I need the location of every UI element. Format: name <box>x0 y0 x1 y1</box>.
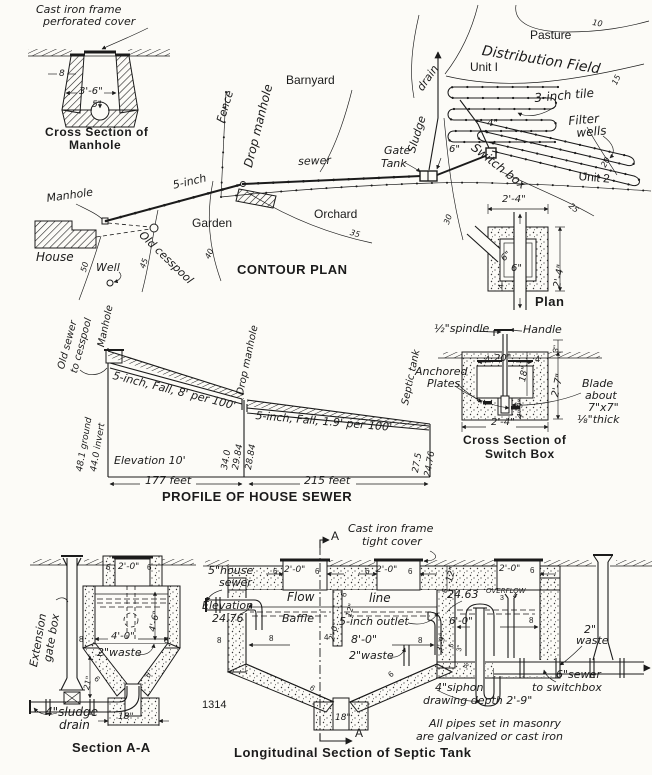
long-dim-2-0c: 2'-0" <box>499 565 520 574</box>
sbplan-dim-pipe: 6" <box>511 264 522 274</box>
plan-contour-10: 10 <box>592 19 603 28</box>
long-label-line: line <box>369 593 391 604</box>
long-label-to-switchbox: to switchbox <box>532 683 602 693</box>
plan-label-sewer: sewer <box>298 156 331 168</box>
manhole-dim-channel: 5" <box>92 101 102 110</box>
profile-dim-177: 177 feet <box>145 476 191 486</box>
long-label-2waste: 2"waste <box>349 651 394 661</box>
long-label-house-sewer-2: sewer <box>219 578 252 588</box>
long-dim-8c: 8 <box>529 617 533 625</box>
secaa-dim-18: 18" <box>118 713 134 722</box>
secaa-caption: Section A-A <box>72 742 151 754</box>
secaa-dim-8r: 8 <box>164 637 168 645</box>
secaa-dim-4-0: 4'-0" <box>111 632 135 642</box>
swbox-label-plates: Plates <box>427 379 460 389</box>
long-dim-18: 18" <box>335 714 351 723</box>
long-label-baffle: Baffle <box>282 614 314 624</box>
long-label-cover-2: tight cover <box>362 537 422 547</box>
sbplan-caption: Plan <box>535 296 564 308</box>
swbox-dim-3: 3" <box>552 345 561 354</box>
contour-plan-drawing <box>35 5 651 300</box>
long-dim-6b: 6 <box>315 568 319 576</box>
swbox-dim-4-right: 4 <box>535 355 540 364</box>
plan-dim-6: 6" <box>449 145 460 155</box>
long-label-flow: Flow <box>287 592 314 603</box>
long-label-overflow: OVERFLOW <box>486 588 526 595</box>
plan-label-wells: wells <box>576 125 607 139</box>
manhole-caption-2: Manhole <box>69 140 121 151</box>
swbox-caption-1: Cross Section of <box>463 435 566 446</box>
secaa-dim-6r: 6 <box>147 564 151 572</box>
plan-contour-35: 35 <box>349 229 361 239</box>
plan-label-garden: Garden <box>192 218 232 229</box>
long-label-2waste-right-2: waste <box>576 636 609 646</box>
long-dim-2-0a: 2'-0" <box>284 566 305 575</box>
long-dim-8a: 8 <box>269 635 273 643</box>
secaa-dim-2-0: 2'-0" <box>118 563 139 572</box>
plan-dim-4: 4" <box>487 119 498 129</box>
plan-label-unit1: Unit I <box>470 62 498 73</box>
secaa-label-sludge-1: 4"sludge <box>45 707 98 718</box>
swbox-label-handle: Handle <box>523 325 562 335</box>
secaa-label-2waste: 2"waste <box>97 648 142 658</box>
long-dim-8b: 8 <box>418 637 422 645</box>
house-plan-shape <box>35 221 96 248</box>
swbox-label-blade-2: about <box>585 391 617 401</box>
long-elev-2463: 24.63 <box>447 590 479 600</box>
swbox-caption-2: Switch Box <box>485 449 555 460</box>
long-dim-o4: 4 <box>513 594 517 601</box>
long-label-siphon-1: 4"siphon <box>435 683 484 693</box>
long-label-elevation-1: Elevation <box>202 601 253 611</box>
long-dim-v3: 3" <box>457 645 465 653</box>
long-note-1: All pipes set in masonry <box>429 719 561 729</box>
manhole-dim-width: 3'-6" <box>79 87 103 97</box>
swbox-dim-4-left: 4 <box>485 355 490 364</box>
long-section-a-bottom: A <box>355 728 363 739</box>
secaa-dim-6l: 6 <box>106 564 110 572</box>
manhole-note-line1: Cast iron frame <box>36 5 121 15</box>
plan-label-orchard: Orchard <box>314 209 357 220</box>
swbox-label-blade-1: Blade <box>582 379 613 389</box>
long-label-house-sewer-1: 5"house <box>208 566 253 576</box>
barn-building-shape <box>236 189 276 208</box>
plan-label-tank: Tank <box>381 159 407 169</box>
long-dim-b4: 4 <box>324 634 328 642</box>
profile-label-elevation-10: Elevation 10' <box>114 456 186 466</box>
manhole-cross-section-drawing <box>28 28 170 127</box>
long-figure-number: 1314 <box>202 700 226 710</box>
manhole-caption-1: Cross Section of <box>45 127 148 138</box>
long-dim-6-0: 6'-0" <box>449 617 473 627</box>
long-dim-8-0: 8'-0" <box>351 635 377 645</box>
swbox-label-blade-3: 7"x7" <box>588 403 619 413</box>
long-dim-2-0b: 2'-0" <box>376 566 397 575</box>
plan-label-barnyard: Barnyard <box>286 75 335 86</box>
swbox-dim-2-4: 2'-4" <box>491 418 515 428</box>
long-note-2: are galvanized or cast iron <box>416 732 563 742</box>
long-label-cover-1: Cast iron frame <box>348 524 433 534</box>
swbox-dim-9: 9" <box>516 398 525 408</box>
plan-label-well: Well <box>96 263 120 273</box>
secaa-dim-8l: 8 <box>79 636 83 644</box>
plan-label-house: House <box>36 252 74 263</box>
drawing-sheet: Cast iron frameperforated cover83'-6"5"C… <box>0 0 652 775</box>
plan-label-pasture: Pasture <box>530 30 571 41</box>
long-dim-o3: 3 <box>500 596 504 603</box>
swbox-dim-4b: 4" <box>516 409 525 419</box>
long-label-6sewer: 6"sewer <box>556 670 601 680</box>
well-symbol <box>107 280 113 286</box>
old-cesspool-symbol <box>150 224 158 232</box>
long-label-elevation-2: 24.76 <box>212 614 244 624</box>
long-caption: Longitudinal Section of Septic Tank <box>234 747 472 759</box>
long-label-5inch-outlet: 5-inch outlet <box>339 617 409 627</box>
swbox-label-blade-4: ⅛"thick <box>577 415 619 425</box>
long-section-a-top: A <box>331 531 339 542</box>
plan-label-unit2: Unit 2 <box>578 171 610 185</box>
long-label-siphon-2: drawing depth 2'-9" <box>423 696 532 706</box>
sbplan-dim-top: 2'-4" <box>502 195 526 205</box>
plan-title: CONTOUR PLAN <box>237 264 347 276</box>
profile-caption: PROFILE OF HOUSE SEWER <box>162 491 352 503</box>
long-dim-6a: 6 <box>273 568 277 576</box>
manhole-dim-wall: 8 <box>59 70 65 79</box>
long-dim-8e: 8 <box>217 637 221 645</box>
secaa-label-sludge-2: drain <box>59 720 90 731</box>
swbox-dim-20: 20" <box>494 354 511 364</box>
manhole-note-line2: perforated cover <box>43 17 135 27</box>
swbox-label-spindle: ½"spindle <box>434 324 489 334</box>
long-dim-6d: 6 <box>408 568 412 576</box>
swbox-label-anchored: Anchored <box>415 367 468 377</box>
profile-dim-215: 215 feet <box>304 476 350 486</box>
long-dim-6f: 6 <box>530 567 534 575</box>
long-dim-6c: 6 <box>365 568 369 576</box>
